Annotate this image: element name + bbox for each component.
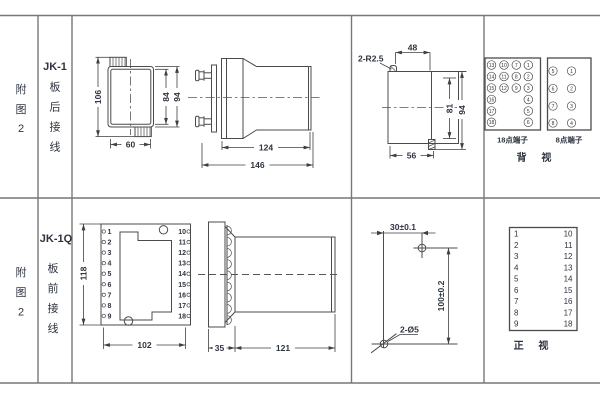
fv-num: 18 [178, 313, 186, 320]
dim-94-rear: 94 [457, 105, 467, 115]
t18-num: 14 [489, 74, 495, 80]
fv-num: 14 [178, 271, 186, 278]
dim-118: 118 [79, 266, 89, 280]
technical-drawing-page: 附 图 2 JK-1 板 后 接 线 106 84 94 60 [0, 0, 600, 400]
fv-num: 6 [108, 282, 112, 289]
fv-num: 3 [108, 250, 112, 257]
terminal-18pt: 13 10 7 1 14 11 8 2 15 12 9 3 16 4 17 5 … [485, 58, 541, 145]
t18-num: 12 [501, 86, 507, 92]
rear-view-label: 背 视 [517, 151, 558, 164]
t8-num: 4 [570, 121, 573, 127]
t8-num: 8 [552, 121, 555, 127]
tbl-num: 7 [514, 297, 519, 306]
fv-num: 10 [178, 229, 186, 236]
t18-num: 9 [515, 86, 518, 92]
terminal-18pt-label: 18点端子 [497, 135, 528, 145]
tbl-num: 5 [514, 275, 519, 284]
t18-num: 10 [501, 63, 507, 69]
top-terminal-block [110, 57, 126, 66]
t8-num: 3 [570, 104, 573, 110]
row2-wiring-char: 线 [48, 321, 59, 335]
connector-key-outline [120, 232, 172, 320]
tbl-num: 12 [564, 252, 573, 261]
t18-num: 11 [501, 74, 506, 80]
t8-num: 5 [552, 69, 555, 75]
terminal-8pt-label: 8点端子 [556, 135, 583, 145]
tbl-num: 15 [564, 286, 573, 295]
row1-wiring-char: 后 [50, 101, 61, 114]
tbl-num: 10 [564, 230, 573, 239]
dim-35: 35 [215, 343, 225, 353]
row1-wiring-char: 接 [50, 121, 61, 134]
row2-labels: 附 图 2 JK-1Q 板 前 接 线 [16, 233, 73, 335]
jk1-rear-view: 48 2-R2.5 81 94 56 [358, 43, 467, 161]
tbl-num: 11 [564, 241, 573, 250]
mounting-hole-top [159, 226, 167, 234]
fv-num: 1 [108, 229, 112, 236]
front-view-label: 正 视 [514, 339, 555, 352]
mounting-screw-top [196, 70, 212, 80]
t8-num: 6 [552, 86, 555, 92]
fv-num: 15 [178, 282, 186, 289]
tbl-num: 4 [514, 263, 519, 272]
fv-num: 12 [178, 250, 186, 257]
row2-fig-char: 图 [16, 286, 27, 299]
tbl-num: 13 [564, 263, 573, 272]
figure-canvas: 附 图 2 JK-1 板 后 接 线 106 84 94 60 [0, 0, 600, 400]
row2-wiring-char: 接 [48, 302, 59, 315]
jk1-side-view: 124 146 [188, 59, 322, 171]
t8-num: 1 [570, 69, 573, 75]
mounting-screw-bottom [196, 116, 212, 126]
dim-146: 146 [250, 160, 264, 170]
tbl-num: 9 [514, 320, 519, 329]
dim-102: 102 [137, 340, 151, 350]
tbl-num: 3 [514, 252, 519, 261]
fv-num: 13 [178, 261, 186, 268]
tbl-num: 2 [514, 241, 519, 250]
t18-num: 8 [515, 74, 518, 80]
row1-labels: 附 图 2 JK-1 板 后 接 线 [16, 61, 67, 154]
row1-fig-char: 图 [16, 103, 27, 116]
t8-num: 7 [552, 104, 555, 110]
jk1-front-view: 106 84 94 60 [93, 57, 182, 149]
mounting-hole-bottom [124, 317, 132, 325]
case-body [222, 59, 312, 139]
jk1q-front-view: 1 2 3 4 5 6 7 8 9 10 11 12 13 14 15 16 1… [79, 224, 191, 350]
front-view-terminal-table: 110 211 312 413 514 615 716 817 918 正 视 [510, 228, 578, 353]
tbl-num: 8 [514, 308, 519, 317]
t18-num: 16 [489, 97, 495, 103]
dim-121: 121 [276, 343, 290, 353]
panel-plate [212, 65, 217, 132]
dim-30: 30±0.1 [390, 222, 416, 232]
fv-num: 11 [179, 240, 187, 247]
t8-num: 2 [570, 86, 573, 92]
t18-num: 4 [527, 97, 530, 103]
dim-100: 100±0.2 [436, 280, 446, 311]
t18-num: 3 [527, 86, 530, 92]
fv-num: 16 [178, 292, 186, 299]
fv-num: 4 [108, 261, 112, 268]
dim-81: 81 [445, 104, 455, 114]
jk1q-side-view: 35 121 [198, 222, 341, 353]
fv-num: 2 [108, 240, 112, 247]
row1-fig-char: 2 [18, 123, 24, 135]
jk1q-drill-template: 30±0.1 100±0.2 2-Ø5 [371, 222, 457, 353]
t18-num: 18 [489, 120, 495, 126]
t18-num: 6 [527, 120, 530, 126]
row2-wiring-char: 前 [48, 281, 59, 295]
dim-60: 60 [126, 140, 136, 150]
t18-num: 2 [527, 74, 530, 80]
radius-note: 2-R2.5 [358, 54, 384, 64]
bottom-terminal-block [135, 127, 151, 137]
row2-model: JK-1Q [40, 233, 73, 245]
row2-wiring-char: 板 [48, 261, 59, 275]
dim-94: 94 [172, 92, 182, 102]
row2-fig-char: 2 [18, 307, 24, 319]
front-outline [101, 224, 191, 325]
t18-num: 13 [489, 63, 495, 69]
fv-num: 9 [108, 313, 112, 320]
row1-fig-char: 附 [16, 82, 27, 96]
terminal-8pt: 5 1 6 2 7 3 8 4 8点端子 [548, 58, 592, 145]
row1-wiring-char: 板 [50, 80, 61, 94]
t18-num: 5 [527, 109, 530, 115]
t18-num: 17 [489, 109, 495, 115]
t18-num: 1 [527, 63, 530, 69]
terminal-screw-stack [227, 226, 231, 324]
row1-model: JK-1 [43, 61, 67, 73]
dim-124: 124 [259, 143, 273, 153]
tbl-num: 1 [514, 230, 519, 239]
dim-106: 106 [93, 90, 103, 104]
dim-48: 48 [408, 43, 418, 53]
t18-num: 15 [489, 86, 495, 92]
dim-84: 84 [161, 92, 171, 102]
dim-56: 56 [407, 151, 417, 161]
t18-num: 7 [515, 63, 518, 69]
tbl-num: 16 [564, 297, 573, 306]
fv-num: 8 [108, 303, 112, 310]
tbl-num: 17 [564, 308, 573, 317]
row2-fig-char: 附 [16, 265, 27, 279]
row1-wiring-char: 线 [50, 140, 61, 154]
fv-num: 7 [108, 292, 112, 299]
fv-num: 5 [108, 271, 112, 278]
tbl-num: 14 [564, 275, 573, 284]
tbl-num: 18 [564, 320, 573, 329]
fv-num: 17 [178, 303, 186, 310]
tbl-num: 6 [514, 286, 519, 295]
holes-note: 2-Ø5 [400, 325, 419, 335]
